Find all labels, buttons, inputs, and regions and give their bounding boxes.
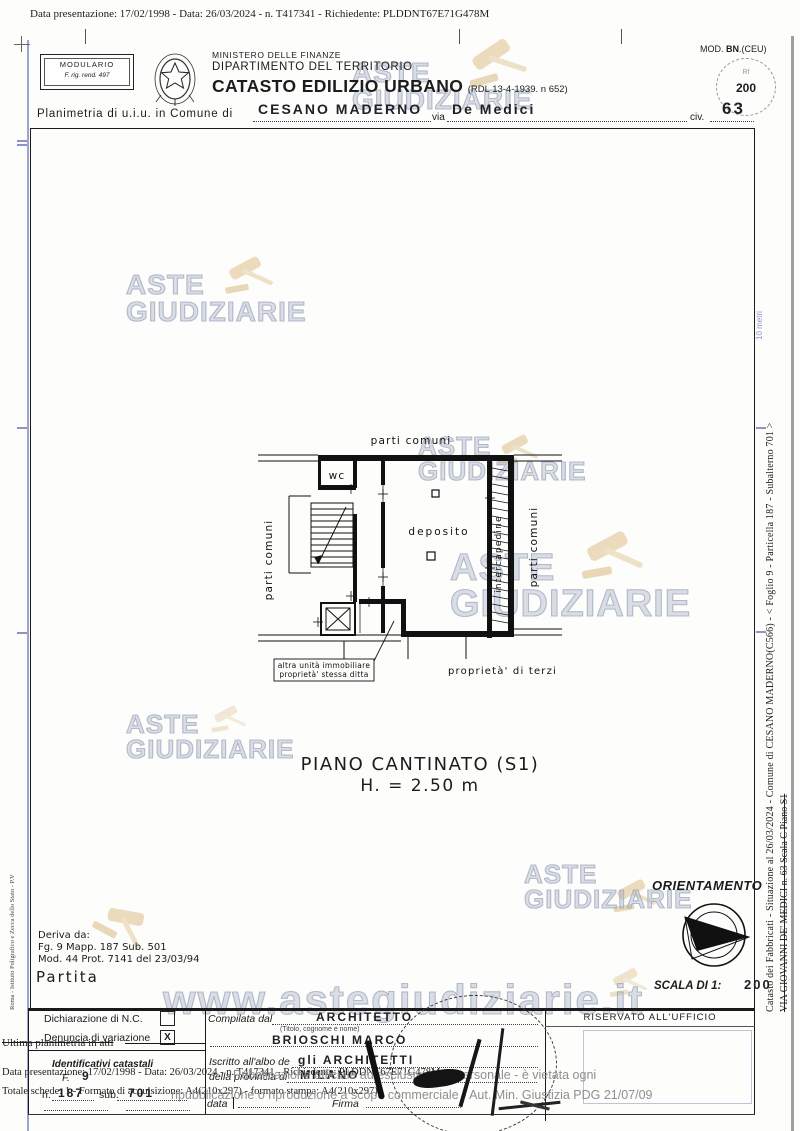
plan-label-deposito: deposito: [408, 526, 469, 538]
mod-label: MOD.: [700, 44, 724, 54]
copyright-notice-2: ripubblicazione o riproduzione a scopo c…: [171, 1088, 653, 1102]
plan-label-parti-comuni-right: parti comuni: [528, 507, 540, 588]
plan-label-proprieta-terzi: proprietà' di terzi: [448, 665, 557, 677]
via-value-stamp: De Medici: [452, 101, 535, 117]
professionista-nome-stamp: BRIOSCHI MARCO: [272, 1033, 407, 1047]
margin-dash: [17, 632, 27, 634]
floor-title: PIANO CANTINATO (S1): [280, 754, 560, 775]
document-title-ref: (RDL 13-4-1939. n 652): [468, 84, 568, 95]
dotted-line: [52, 1100, 94, 1101]
cadastre-reference-vertical: Catasto dei Fabbricati - Situazione al 2…: [765, 140, 776, 1012]
plan-label-altra-unita-1: altra unità immobiliare: [278, 661, 371, 670]
strike-extension: [125, 1043, 205, 1044]
table-border-left: [28, 1008, 29, 1114]
registration-tick: [459, 29, 460, 44]
via-label: via: [432, 112, 445, 123]
dotted-line: [710, 121, 754, 122]
scan-edge-shadow: [791, 36, 794, 1131]
dotted-line: [447, 121, 687, 122]
margin-dash: [17, 144, 27, 146]
printer-credit-vertical: Roma - Istituto Poligrafico e Zecca dell…: [9, 845, 16, 1010]
registration-cross: [14, 44, 30, 45]
planimetria-label: Planimetria di u.i.u. in Comune di: [37, 108, 233, 120]
registration-tick: [85, 29, 86, 44]
cadastral-document-page: ASTE GIUDIZIARIE ASTE GIUDIZIARIE ASTE G…: [0, 0, 800, 1131]
comune-value-stamp: CESANO MADERNO: [258, 101, 422, 117]
plan-label-parti-comuni-top: parti comuni: [371, 435, 452, 447]
modulario-title: MODULARIO: [41, 60, 133, 69]
ultima-planimetria-struck: Ultima planimetria in atti: [2, 1037, 114, 1049]
scala-label: SCALA DI 1:: [654, 980, 721, 992]
mod-suffix: .(CEU): [739, 44, 767, 54]
deriva-title: Deriva da:: [38, 930, 90, 941]
margin-dash: [17, 140, 27, 142]
compilata-label: Compilata dal: [208, 1013, 272, 1025]
plan-label-parti-comuni-left: parti comuni: [263, 520, 275, 601]
department-line: DIPARTIMENTO DEL TERRITORIO: [212, 61, 413, 73]
address-reference-vertical-struck: VIA GIOVANNI DE' MEDICI n. 63 Scala C Pi…: [779, 762, 790, 1012]
floor-plan: parti comuni wc deposito parti comuni in…: [256, 428, 566, 693]
scale-stamp-value: 200: [717, 81, 775, 95]
deriva-line2: Mod. 44 Prot. 7141 del 23/03/94: [38, 954, 200, 965]
civ-label: civ.: [690, 112, 704, 123]
civ-value-stamp: 63: [722, 99, 745, 119]
compass-icon: [680, 901, 754, 971]
dotted-line: [238, 1107, 310, 1108]
registration-tick: [621, 29, 622, 44]
dotted-line: [253, 121, 431, 122]
deriva-line1: Fg. 9 Mapp. 187 Sub. 501: [38, 942, 167, 953]
partita-label: Partita: [36, 968, 99, 986]
compilata-value-stamp: ARCHITETTO: [316, 1010, 413, 1024]
registration-cross: [21, 36, 22, 52]
riservato-heading: RISERVATO ALL'UFFICIO: [545, 1012, 755, 1023]
left-cell-divider: [28, 1050, 205, 1051]
scale-stamp-small-text: Rf: [717, 69, 775, 76]
scale-bar-label: 10 metri: [755, 296, 764, 340]
modulario-subtitle: F. rig. rend. 497: [41, 72, 133, 79]
state-emblem: [148, 50, 202, 108]
plan-label-altra-unita-2: proprietà' stessa ditta: [279, 670, 368, 679]
dotted-line: [126, 1110, 190, 1111]
titolo-note: (Titolo, cognome e nome): [280, 1026, 360, 1033]
orientamento-title: ORIENTAMENTO: [652, 878, 762, 893]
dichiarazione-checkbox[interactable]: [160, 1011, 175, 1026]
document-title: CATASTO EDILIZIO URBANO: [212, 76, 463, 96]
mod-reference: MOD. BN.(CEU): [700, 44, 767, 54]
document-title-line: CATASTO EDILIZIO URBANO (RDL 13-4-1939. …: [212, 76, 568, 97]
dotted-line: [44, 1110, 108, 1111]
table-border-bottom: [28, 1114, 755, 1115]
dichiarazione-label: Dichiarazione di N.C.: [44, 1013, 143, 1025]
mod-value: BN: [726, 44, 739, 54]
modulario-box: MODULARIO F. rig. rend. 497: [40, 54, 134, 90]
scala-value-stamp: 200: [744, 977, 772, 992]
floor-height: H. = 2.50 m: [280, 776, 560, 796]
plan-label-wc: wc: [329, 470, 346, 482]
plan-label-intercapedine: intercapedine: [494, 515, 504, 593]
table-border-right: [754, 1008, 755, 1114]
presentation-data-line: Data presentazione: 17/02/1998 - Data: 2…: [30, 8, 489, 20]
ministry-line: MINISTERO DELLE FINANZE: [212, 50, 341, 60]
scan-margin-line-left: [27, 40, 29, 1131]
riservato-underline: [545, 1026, 755, 1027]
margin-dash: [17, 427, 27, 429]
